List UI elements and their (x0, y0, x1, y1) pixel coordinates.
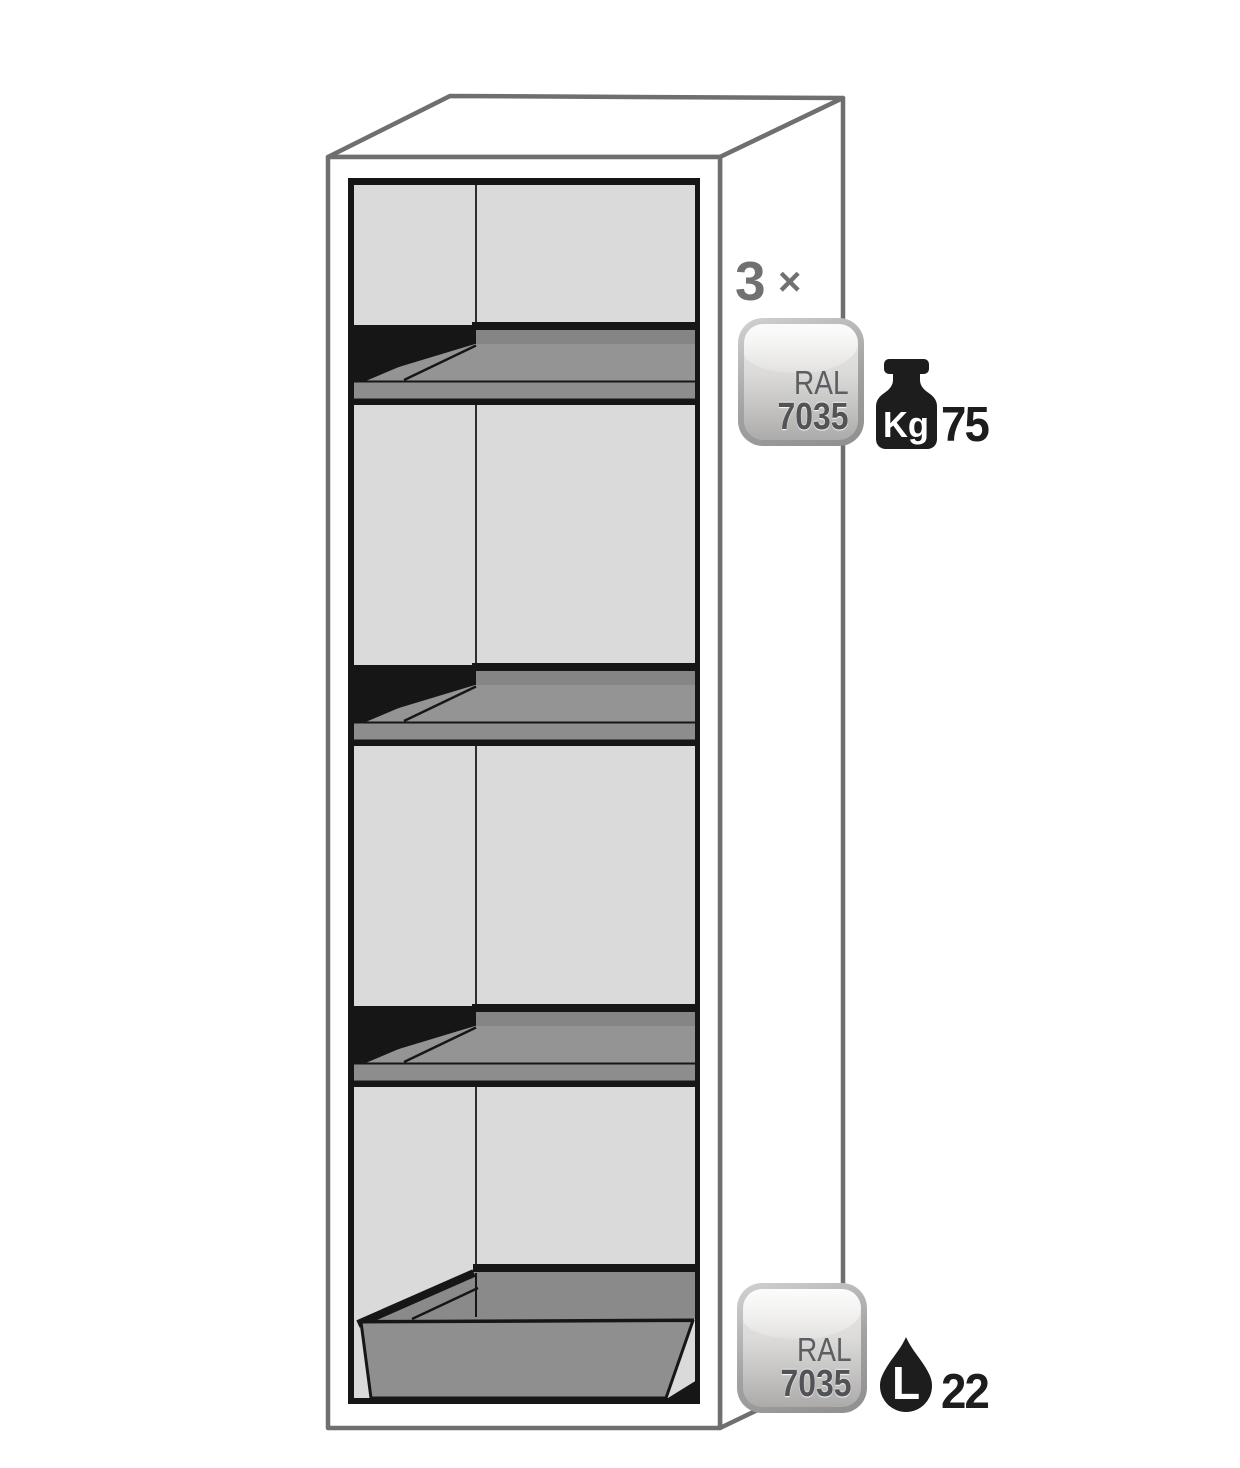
sump-volume-value: 22 (941, 1368, 988, 1417)
ral-label: RAL (777, 368, 849, 398)
diagram-canvas: 3 × RAL 7035 Kg 75 RAL 7035 L 22 (0, 0, 1240, 1468)
liter-drop-icon: L (874, 1332, 938, 1416)
ral-label: RAL (780, 1335, 852, 1365)
shelf-count-label: 3 × (735, 254, 801, 309)
ral-color-badge-shelves: RAL 7035 (738, 318, 864, 446)
liter-unit-label: L (892, 1357, 920, 1409)
shelf-load-value: 75 (941, 401, 988, 450)
ral-number: 7035 (781, 1365, 852, 1404)
ral-color-badge-sump: RAL 7035 (737, 1283, 867, 1413)
ral-number: 7035 (778, 398, 849, 437)
weight-kg-icon: Kg (872, 356, 940, 451)
kg-unit-label: Kg (883, 404, 929, 445)
multiply-icon: × (778, 262, 801, 302)
shelf-count-value: 3 (735, 254, 766, 309)
cabinet-drawing (0, 0, 1240, 1468)
